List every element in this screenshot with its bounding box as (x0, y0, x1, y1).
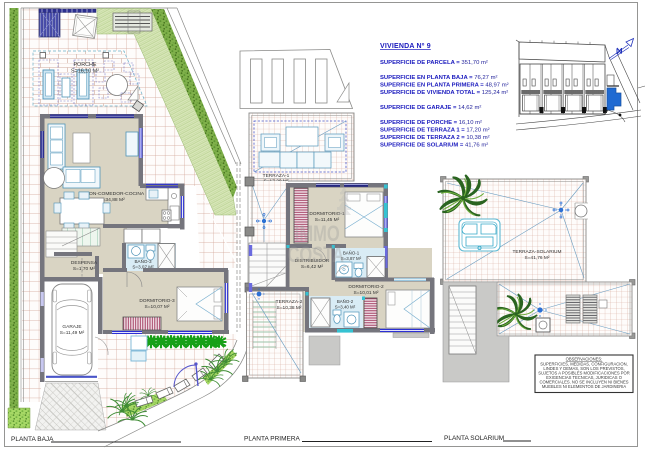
svg-text:SUPERFICIE DE TERRAZA 1 = 17,2: SUPERFICIE DE TERRAZA 1 = 17,20 m² (380, 128, 490, 134)
svg-text:TERRAZA-1: TERRAZA-1 (263, 173, 290, 179)
svg-text:DESPENSA: DESPENSA (71, 260, 98, 266)
svg-text:S=10,01 M²: S=10,01 M² (354, 290, 379, 296)
svg-text:SUPERFICIE DE VIVIENDA TOTAL =: SUPERFICIE DE VIVIENDA TOTAL = 125,24 m² (380, 90, 508, 96)
svg-text:PLANTA BAJA: PLANTA BAJA (11, 436, 54, 443)
svg-text:S=1,70 M²: S=1,70 M² (73, 266, 96, 272)
svg-text:SALON-COMEDOR-COCINA: SALON-COMEDOR-COCINA (80, 191, 145, 197)
svg-text:SUPERFICIE DE PORCHE = 16,10 m: SUPERFICIE DE PORCHE = 16,10 m² (380, 120, 482, 126)
svg-text:SUPERFICIE DE TERRAZA 2 = 10,3: SUPERFICIE DE TERRAZA 2 = 10,38 m² (380, 135, 490, 141)
svg-text:TERRAZA-SOLARIUM: TERRAZA-SOLARIUM (512, 249, 561, 255)
svg-text:S=16,10 M²: S=16,10 M² (71, 69, 99, 75)
svg-text:BAÑO-2: BAÑO-2 (337, 299, 354, 304)
svg-text:COSTA: COSTA (287, 243, 344, 268)
svg-text:S=10,07 M²: S=10,07 M² (145, 304, 170, 310)
svg-text:S=41,76 M²: S=41,76 M² (525, 255, 550, 261)
svg-text:PLANTA SOLARIUM: PLANTA SOLARIUM (444, 435, 504, 442)
svg-text:SUPERFICIE DE PARCELA = 351,70: SUPERFICIE DE PARCELA = 351,70 m² (380, 60, 488, 66)
svg-text:GARAJE: GARAJE (62, 324, 81, 330)
svg-text:BAÑO-3: BAÑO-3 (134, 258, 152, 264)
svg-text:SUPERFICIE DE SOLARIUM = 41,76: SUPERFICIE DE SOLARIUM = 41,76 m² (380, 143, 488, 149)
svg-text:SUPERFICIE EN PLANTA PRIMERA =: SUPERFICIE EN PLANTA PRIMERA = 48,97 m² (380, 83, 509, 89)
svg-text:PORCHE: PORCHE (73, 62, 96, 68)
svg-text:MUEBLES NI ELEMENTOS DE JARDIN: MUEBLES NI ELEMENTOS DE JARDINERIA (542, 384, 627, 389)
svg-text:SUPERFICIE DE GARAJE = 14,62 m: SUPERFICIE DE GARAJE = 14,62 m² (380, 105, 481, 111)
svg-text:SUPERFICIE EN PLANTA BAJA = 76: SUPERFICIE EN PLANTA BAJA = 76,27 m² (380, 75, 498, 81)
svg-text:VIVIENDA Nº 9: VIVIENDA Nº 9 (380, 43, 431, 50)
svg-text:DORMITORIO-3: DORMITORIO-3 (139, 298, 175, 304)
svg-text:S=3,40 M²: S=3,40 M² (335, 305, 356, 310)
svg-text:PLANTA PRIMERA: PLANTA PRIMERA (244, 436, 301, 443)
svg-text:DORMITORIO-2: DORMITORIO-2 (348, 284, 384, 290)
svg-text:S=11,49 M²: S=11,49 M² (60, 330, 85, 336)
svg-text:S=10,38 M²: S=10,38 M² (277, 305, 302, 311)
svg-text:BAÑO-1: BAÑO-1 (343, 251, 360, 256)
svg-text:TERRAZA-2: TERRAZA-2 (276, 299, 303, 305)
